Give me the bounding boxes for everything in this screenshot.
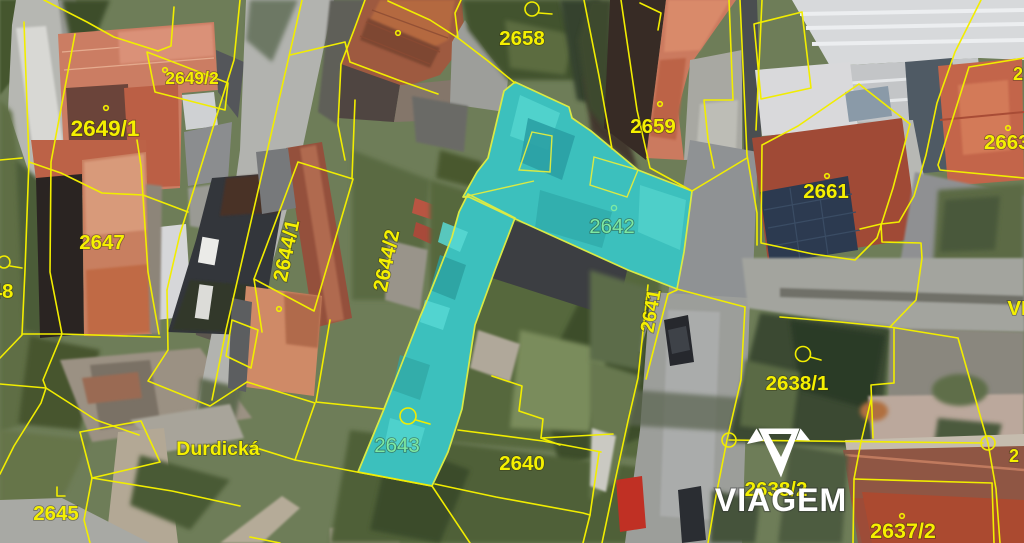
svg-text:2663: 2663 (984, 131, 1024, 154)
svg-text:2643: 2643 (374, 434, 420, 457)
svg-text:2647: 2647 (79, 231, 125, 254)
svg-text:VIAGEM: VIAGEM (715, 482, 847, 518)
svg-text:2658: 2658 (499, 27, 545, 50)
svg-text:2638/1: 2638/1 (766, 372, 829, 395)
svg-text:2659: 2659 (630, 115, 676, 138)
svg-text:2661: 2661 (803, 180, 849, 203)
svg-text:2: 2 (1009, 446, 1019, 466)
svg-text:48: 48 (0, 280, 13, 303)
svg-text:2645: 2645 (33, 502, 79, 525)
svg-text:2649/1: 2649/1 (71, 116, 140, 141)
svg-text:2: 2 (1013, 64, 1023, 84)
svg-text:Durdická: Durdická (176, 438, 260, 460)
svg-text:2642: 2642 (589, 215, 635, 238)
svg-text:2640: 2640 (499, 452, 545, 475)
svg-text:2637/2: 2637/2 (870, 519, 936, 543)
svg-text:2649/2: 2649/2 (165, 68, 219, 88)
svg-text:VI: VI (1007, 297, 1024, 320)
